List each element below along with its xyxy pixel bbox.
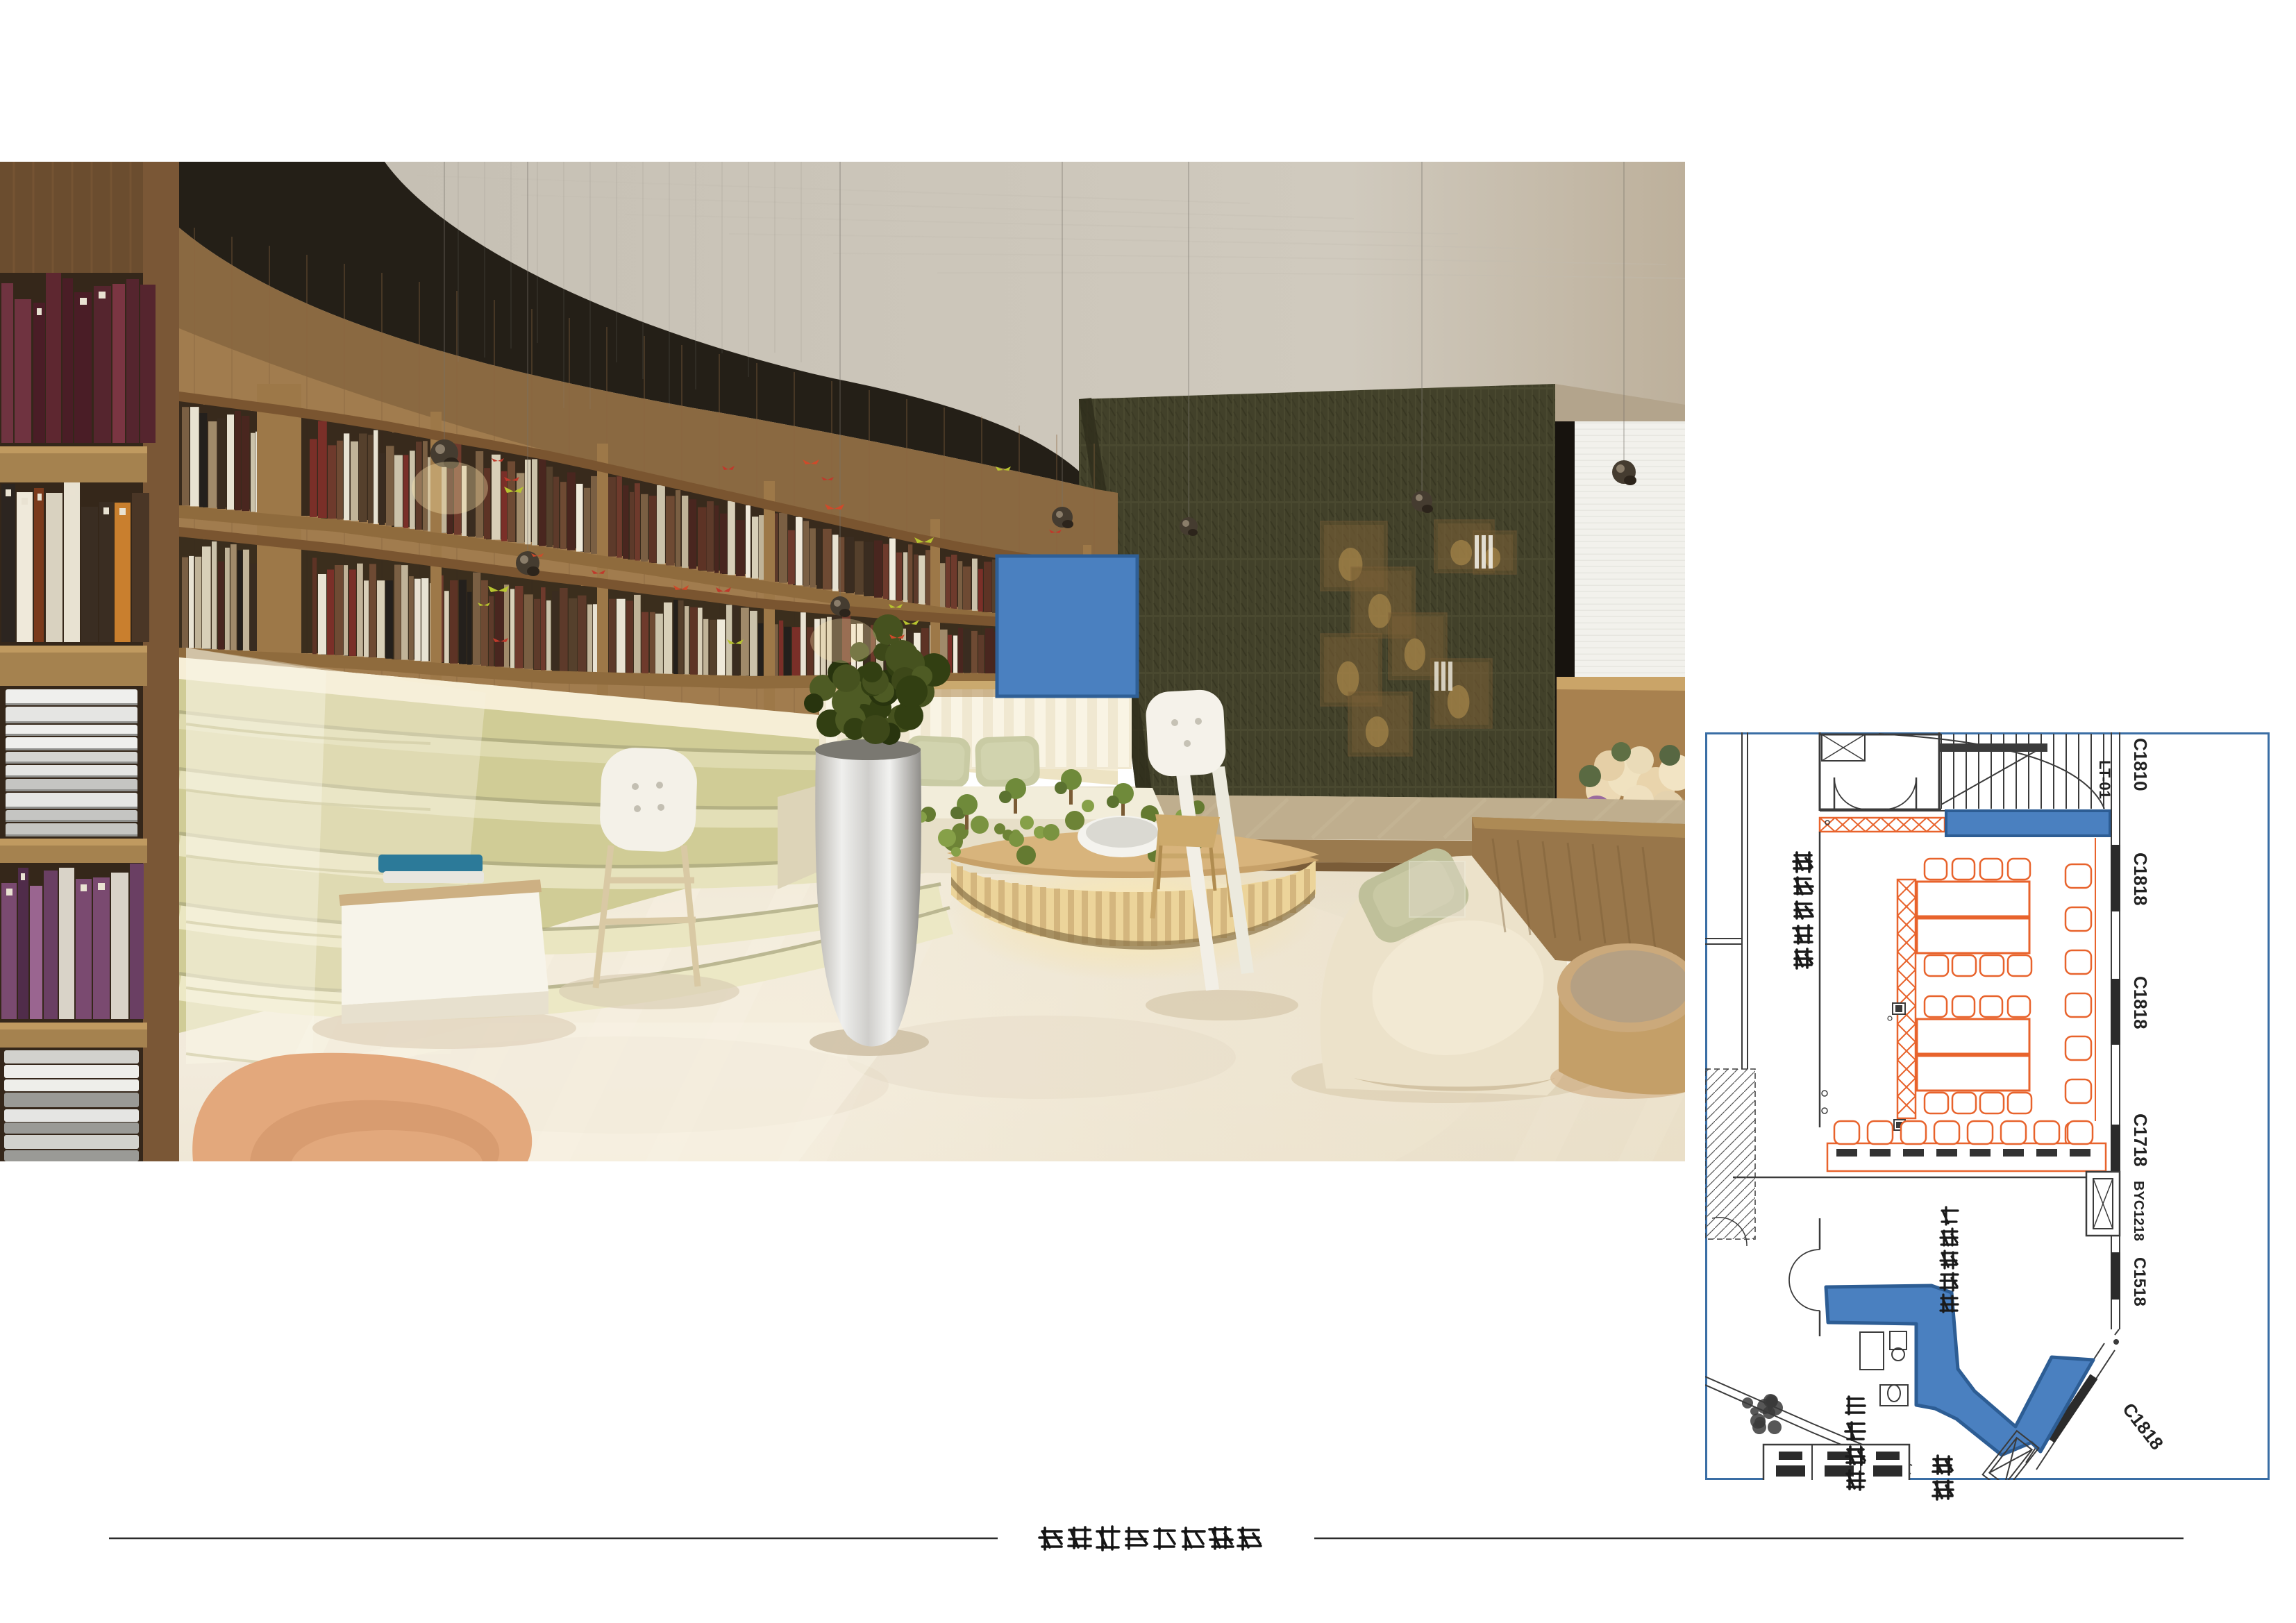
svg-text:BYC1218: BYC1218 [2131,1181,2146,1241]
svg-text:C1518: C1518 [2130,1257,2149,1306]
svg-text:C1718: C1718 [2130,1113,2151,1167]
svg-text:C1810: C1810 [2130,738,2151,791]
svg-text:C1818: C1818 [2130,852,2151,906]
svg-text:C1818: C1818 [2118,1399,2168,1454]
svg-text:LT-01: LT-01 [2096,760,2113,799]
svg-text:C1818: C1818 [2130,976,2151,1029]
